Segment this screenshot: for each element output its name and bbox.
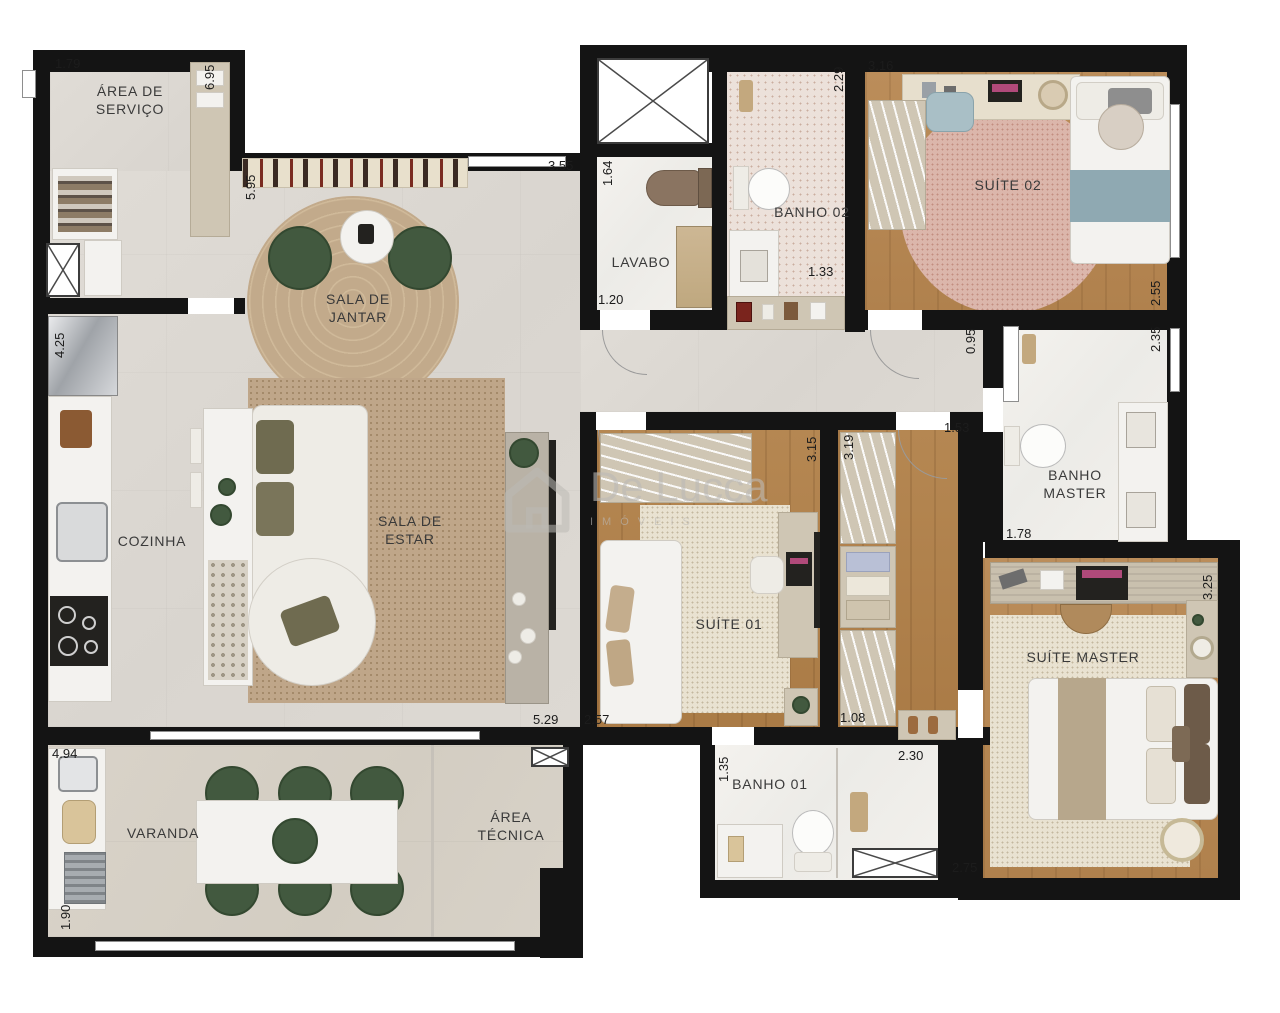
- dim-servico-h: 6.95: [202, 65, 217, 90]
- wall: [820, 430, 838, 745]
- plant: [218, 478, 236, 496]
- wall: [580, 412, 597, 745]
- stone-sink: [676, 226, 712, 308]
- wall: [580, 45, 597, 157]
- tablet: [358, 224, 374, 244]
- pillow-brown: [1172, 726, 1190, 762]
- bed-blanket: [1070, 170, 1170, 222]
- laundry-clothes: [58, 176, 112, 232]
- decor-bowl: [512, 592, 526, 606]
- dim-jantar-h: 5.95: [243, 175, 258, 200]
- burner: [58, 606, 76, 624]
- dim-suite01-w: 2.57: [584, 712, 609, 727]
- monitor-screen: [992, 84, 1018, 92]
- towel: [196, 92, 224, 108]
- grill: [64, 852, 106, 904]
- table-plant: [272, 818, 318, 864]
- dim-closet-h: 3.19: [841, 435, 856, 460]
- decor-object: [762, 304, 774, 320]
- dim-banho-master-h: 2.35: [1148, 327, 1163, 352]
- bed-runner: [1058, 678, 1106, 820]
- wall: [700, 745, 715, 895]
- wall: [958, 430, 983, 900]
- sink: [740, 250, 768, 282]
- room-label-sala-estar: SALA DE ESTAR: [378, 512, 442, 548]
- shower-door: [1003, 326, 1019, 402]
- dim-suite01-h: 3.15: [804, 437, 819, 462]
- dim-sala-top-w: 3.55: [548, 158, 573, 173]
- varanda-sink: [58, 756, 98, 792]
- room-label-varanda: VARANDA: [127, 824, 199, 842]
- dim-hall-h: 0.95: [963, 329, 978, 354]
- cutting-board: [60, 410, 92, 448]
- wall: [700, 880, 958, 898]
- floor-plan: ÁREA DE SERVIÇO SALA DE JANTAR SALA DE E…: [0, 0, 1280, 1013]
- window: [95, 941, 515, 951]
- wall: [228, 50, 245, 162]
- toilet-tank: [1004, 426, 1020, 466]
- wall: [1218, 555, 1240, 900]
- dim-varanda-w: 4.94: [52, 746, 77, 761]
- bench: [190, 428, 202, 464]
- room-label-area-tecnica: ÁREA TÉCNICA: [477, 808, 544, 844]
- dim-cozinha-h: 4.25: [52, 333, 67, 358]
- suite02-wardrobe: [868, 100, 926, 230]
- door-gap-suite01: [596, 412, 646, 430]
- room-label-banho01: BANHO 01: [732, 775, 808, 793]
- decor-object: [784, 302, 798, 320]
- dim-suite02-h: 2.55: [1148, 281, 1163, 306]
- wall: [580, 153, 597, 318]
- sink: [728, 836, 744, 862]
- dim-banho02-h: 2.29: [831, 67, 846, 92]
- cooktop: [50, 596, 108, 666]
- folded-clothes: [846, 600, 890, 620]
- room-label-banho-master: BANHO MASTER: [1043, 466, 1106, 502]
- dim-lavabo-w: 1.20: [598, 292, 623, 307]
- toilet-tank: [698, 168, 712, 208]
- suite01-wardrobe: [600, 433, 752, 503]
- room-label-suite-master: SUÍTE MASTER: [1026, 648, 1139, 666]
- sink: [1126, 492, 1156, 528]
- door-gap-suite02: [868, 310, 922, 330]
- room-label-sala-jantar: SALA DE JANTAR: [326, 290, 390, 326]
- shoe-mat: [898, 710, 956, 740]
- shower-column: [850, 792, 868, 832]
- table-runner: [208, 560, 248, 680]
- door-gap-servico: [188, 298, 234, 314]
- service-shower-box: [46, 243, 80, 297]
- pillow: [606, 639, 635, 687]
- plant: [1192, 614, 1204, 626]
- basket: [62, 800, 96, 844]
- service-sink-counter: [84, 240, 122, 296]
- window: [22, 70, 36, 98]
- dim-servico-w: 1.79: [55, 56, 80, 71]
- toilet: [792, 810, 834, 856]
- dim-suite-master-w: 2.75: [952, 860, 977, 875]
- wall: [33, 745, 48, 957]
- wall: [712, 57, 727, 312]
- door-gap-banho01: [712, 727, 754, 745]
- shaft-box: [597, 58, 709, 144]
- room-label-suite02: SUÍTE 02: [974, 176, 1041, 194]
- sofa-cushion: [256, 482, 294, 536]
- dining-armchair: [268, 226, 332, 290]
- folded-clothes: [846, 576, 890, 596]
- toilet-tank: [794, 852, 832, 872]
- suite01-bed: [600, 540, 682, 724]
- decor-frame: [810, 302, 826, 320]
- shower-head: [739, 80, 753, 112]
- burner: [84, 640, 98, 654]
- dim-suite-master-h: 3.25: [1200, 575, 1215, 600]
- tv: [814, 532, 820, 628]
- toilet: [1020, 424, 1066, 468]
- dining-armchair: [388, 226, 452, 290]
- dim-banho01-w: 2.30: [898, 748, 923, 763]
- shoes: [908, 716, 918, 734]
- bench: [190, 472, 202, 508]
- sideboard-bar: [242, 158, 468, 188]
- floor-lamp: [1160, 818, 1204, 862]
- decor-bowl: [520, 628, 536, 644]
- door-gap-lavabo: [600, 310, 650, 330]
- dim-lavabo-h: 1.64: [600, 161, 615, 186]
- dim-sala-w: 5.29: [533, 712, 558, 727]
- shower-head: [1022, 334, 1036, 364]
- desk-lamp: [1038, 80, 1068, 110]
- banho01-shower-box: [852, 848, 938, 878]
- laptop-screen: [790, 558, 808, 564]
- door-gap-suite-master: [958, 690, 983, 738]
- dim-banho02-w: 1.33: [808, 264, 833, 279]
- kitchen-sink: [56, 502, 108, 562]
- decor-frame: [736, 302, 752, 322]
- decor-bowl: [508, 650, 522, 664]
- shoes: [928, 716, 938, 734]
- room-label-suite01: SUÍTE 01: [695, 615, 762, 633]
- dim-suite02-w: 3.16: [868, 58, 893, 73]
- varanda-tecnica-divider: [431, 745, 434, 937]
- wall: [33, 312, 48, 745]
- burner: [58, 636, 78, 656]
- dim-closet-w: 1.53: [944, 420, 969, 435]
- dim-varanda-h: 1.90: [58, 905, 73, 930]
- tecnica-shaft-box: [531, 747, 569, 767]
- desk-chair: [926, 92, 974, 132]
- sink: [1190, 636, 1214, 660]
- burner: [82, 616, 96, 630]
- sink: [1126, 412, 1156, 448]
- room-label-cozinha: COZINHA: [118, 532, 187, 550]
- vanity: [717, 824, 783, 878]
- room-label-lavabo: LAVABO: [612, 253, 671, 271]
- wall: [585, 143, 727, 157]
- sofa-cushion: [256, 420, 294, 474]
- window: [1170, 104, 1180, 258]
- door-gap-closet: [896, 412, 950, 430]
- desk-chair: [750, 556, 784, 594]
- wall: [845, 45, 865, 332]
- plant: [792, 696, 810, 714]
- dim-banho01-h: 1.35: [716, 757, 731, 782]
- dim-closet-w2: 1.08: [840, 710, 865, 725]
- toilet-tank: [733, 166, 749, 210]
- plant: [210, 504, 232, 526]
- wall: [983, 322, 1003, 542]
- folded-clothes: [846, 552, 890, 572]
- toilet: [646, 170, 700, 206]
- shower-partition: [836, 748, 838, 878]
- dim-banho-master-w: 1.78: [1006, 526, 1031, 541]
- window-sliding-door: [150, 731, 480, 740]
- round-pillow: [1098, 104, 1144, 150]
- room-label-area-servico: ÁREA DE SERVIÇO: [96, 82, 164, 118]
- desk-object: [1040, 570, 1064, 590]
- decor-object: [752, 842, 764, 854]
- wall: [985, 540, 1240, 558]
- wall: [540, 868, 583, 958]
- laptop-screen: [1082, 570, 1122, 578]
- window: [1170, 328, 1180, 392]
- wall: [958, 878, 1240, 900]
- door-gap-banho-master: [983, 388, 1003, 432]
- room-label-banho02: BANHO 02: [774, 203, 850, 221]
- tv: [549, 440, 556, 630]
- plant: [509, 438, 539, 468]
